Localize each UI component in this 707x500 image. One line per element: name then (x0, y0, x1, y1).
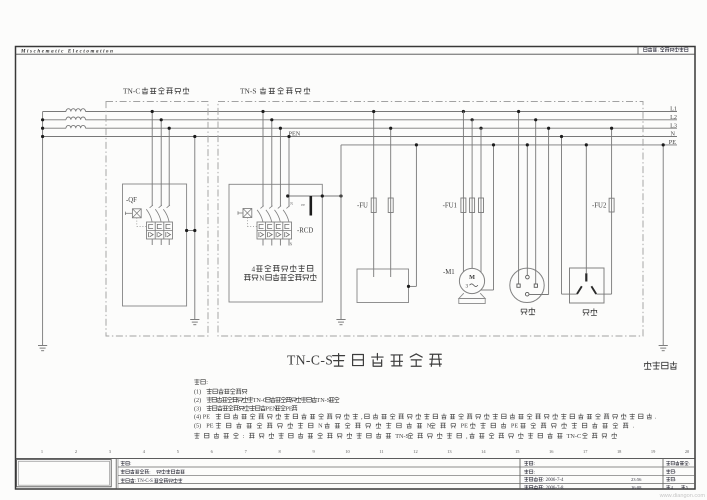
svg-text:-QF: -QF (126, 197, 137, 204)
svg-text:(2): (2) (194, 397, 201, 404)
svg-text:N: N (318, 423, 323, 430)
svg-text:3: 3 (466, 283, 469, 289)
svg-text:PE: PE (461, 423, 468, 430)
svg-text:1: 1 (41, 449, 43, 454)
svg-text:23:56: 23:56 (631, 477, 642, 482)
svg-text:(5): (5) (194, 423, 201, 430)
svg-text:4: 4 (252, 265, 256, 273)
svg-text:-FU2: -FU2 (592, 202, 607, 209)
svg-text:2: 2 (75, 449, 77, 454)
svg-text:11: 11 (379, 449, 383, 454)
svg-text:-FU1: -FU1 (443, 203, 457, 210)
svg-text::: : (675, 469, 676, 474)
svg-text:PE: PE (206, 423, 213, 430)
svg-text:N: N (671, 131, 676, 138)
svg-text:L3: L3 (670, 122, 677, 129)
svg-text:N: N (259, 274, 264, 282)
svg-text::: : (658, 48, 659, 53)
svg-text:L2: L2 (670, 114, 677, 121)
svg-text:www.diangon.com: www.diangon.com (659, 493, 706, 499)
svg-text:TN-C-S: TN-C-S (287, 352, 333, 367)
svg-text:-M1: -M1 (443, 269, 455, 276)
svg-text:TN-C: TN-C (567, 433, 581, 440)
svg-text:N: N (290, 202, 293, 206)
svg-text:(1): (1) (194, 388, 201, 395)
svg-text:PE: PE (301, 203, 305, 207)
svg-text:: 2006-7-4: : 2006-7-4 (543, 478, 564, 483)
svg-text:N: N (290, 243, 293, 247)
svg-text:Mischematic Electomation: Mischematic Electomation (20, 49, 115, 54)
svg-text::: : (206, 379, 208, 386)
svg-text:TN-S: TN-S (240, 87, 256, 96)
svg-text:(4) PE: (4) PE (194, 414, 210, 421)
svg-text:TN-C: TN-C (253, 397, 267, 404)
svg-text:PE: PE (511, 423, 518, 430)
svg-text::: : (130, 462, 131, 467)
svg-text::: : (689, 461, 690, 466)
svg-text::: : (534, 462, 535, 467)
svg-text::: : (675, 477, 676, 482)
svg-text:: TN-C-S: : TN-C-S (135, 479, 153, 484)
svg-text:: 2006-7-8: : 2006-7-8 (543, 486, 564, 491)
svg-text::: : (534, 470, 535, 475)
svg-text:M: M (469, 274, 475, 281)
svg-text:TN-S: TN-S (316, 397, 330, 404)
svg-text:L1: L1 (670, 106, 677, 113)
svg-text::: : (149, 470, 150, 475)
svg-text:(3): (3) (194, 405, 201, 412)
svg-text:TN-S: TN-S (395, 433, 409, 440)
svg-text:12: 12 (413, 449, 417, 454)
svg-text:PEN: PEN (289, 130, 301, 137)
svg-text:-FU: -FU (357, 202, 368, 209)
svg-text:TN-C: TN-C (123, 87, 140, 96)
svg-text:PE: PE (669, 139, 676, 146)
svg-text:PE: PE (285, 405, 292, 412)
svg-text:-RCD: -RCD (297, 228, 313, 235)
svg-text::: : (243, 433, 245, 440)
svg-text:16:08: 16:08 (631, 485, 642, 490)
